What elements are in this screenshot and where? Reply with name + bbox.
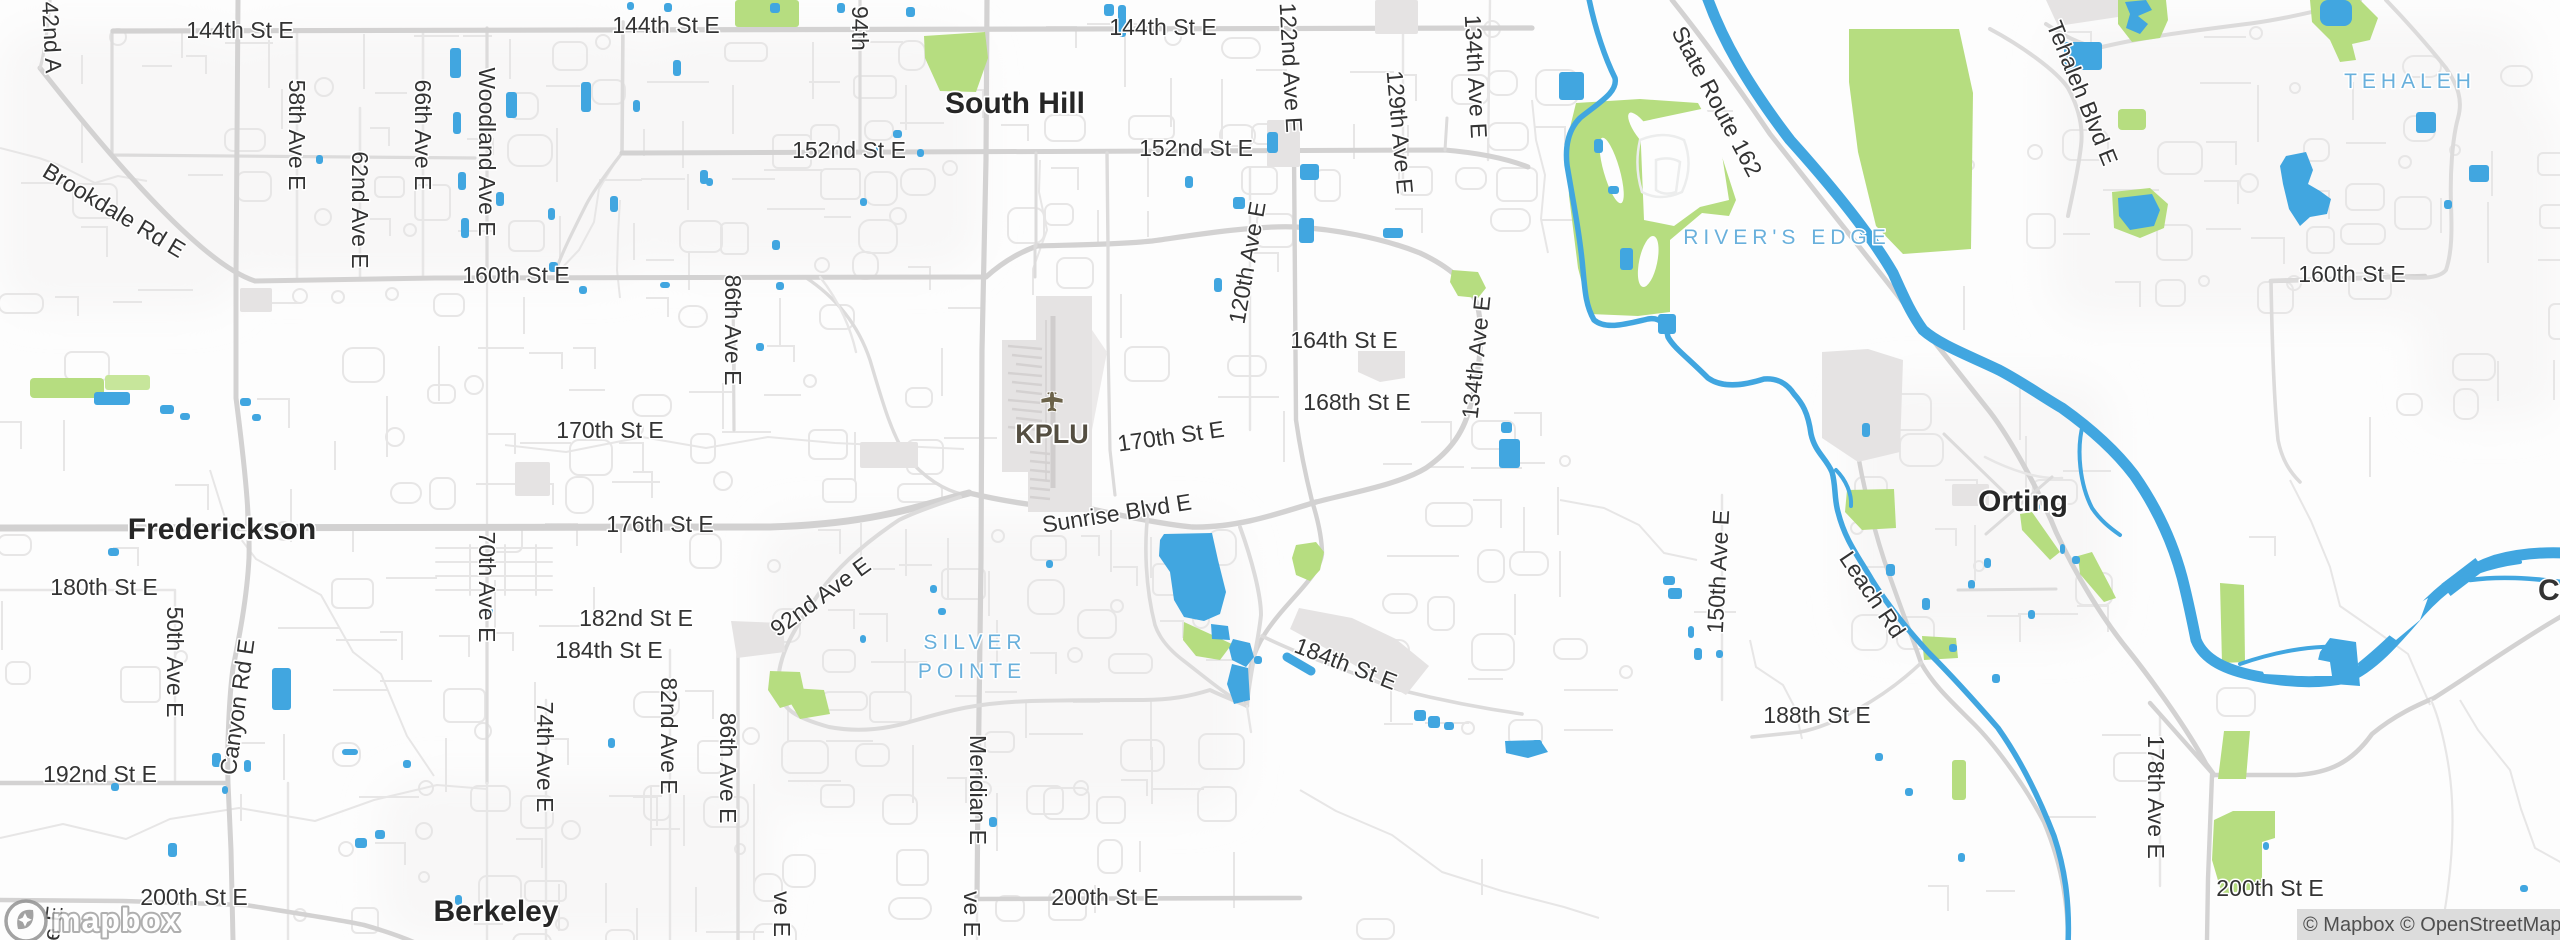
svg-text:62nd Ave E: 62nd Ave E xyxy=(347,151,373,268)
svg-text:74th Ave E: 74th Ave E xyxy=(532,702,558,813)
svg-text:160th St E: 160th St E xyxy=(462,262,569,288)
svg-text:South Hill: South Hill xyxy=(945,87,1085,120)
svg-text:Meridian E: Meridian E xyxy=(965,735,991,845)
svg-text:Berkeley: Berkeley xyxy=(433,895,558,928)
svg-text:70th Ave E: 70th Ave E xyxy=(474,532,500,643)
svg-text:50th Ave E: 50th Ave E xyxy=(162,607,188,718)
svg-text:86th Ave E: 86th Ave E xyxy=(720,275,746,386)
svg-text:ve E: ve E xyxy=(959,891,985,937)
svg-text:192nd St E: 192nd St E xyxy=(43,761,157,787)
svg-text:© Mapbox © OpenStreetMap: © Mapbox © OpenStreetMap xyxy=(2303,914,2560,936)
svg-text:184th St E: 184th St E xyxy=(555,637,662,663)
svg-text:42nd A: 42nd A xyxy=(37,1,67,75)
svg-text:94th: 94th xyxy=(847,6,873,51)
svg-text:144th St E: 144th St E xyxy=(612,12,719,38)
svg-text:152nd St E: 152nd St E xyxy=(792,137,906,163)
svg-text:200th St E: 200th St E xyxy=(2216,875,2323,901)
svg-text:144th St E: 144th St E xyxy=(186,17,293,43)
svg-text:Frederickson: Frederickson xyxy=(128,513,316,546)
svg-text:66th Ave E: 66th Ave E xyxy=(410,80,436,191)
svg-text:200th St E: 200th St E xyxy=(1051,884,1158,910)
svg-text:Woodland Ave E: Woodland Ave E xyxy=(474,67,500,236)
svg-text:152nd St E: 152nd St E xyxy=(1139,135,1253,161)
svg-text:Cr: Cr xyxy=(2538,574,2560,607)
svg-text:82nd Ave E: 82nd Ave E xyxy=(656,677,682,794)
svg-text:POINTE: POINTE xyxy=(918,660,1026,683)
svg-text:ve E: ve E xyxy=(769,891,795,937)
svg-text:170th St E: 170th St E xyxy=(556,417,663,443)
svg-text:178th Ave E: 178th Ave E xyxy=(2143,735,2169,859)
svg-text:RIVER'S EDGE: RIVER'S EDGE xyxy=(1683,226,1891,249)
svg-text:188th St E: 188th St E xyxy=(1763,702,1870,728)
svg-text:182nd St E: 182nd St E xyxy=(579,605,693,631)
svg-text:144th St E: 144th St E xyxy=(1109,14,1216,40)
svg-text:160th St E: 160th St E xyxy=(2298,261,2405,287)
svg-text:180th St E: 180th St E xyxy=(50,574,157,600)
svg-text:176th St E: 176th St E xyxy=(606,511,713,537)
svg-text:KPLU: KPLU xyxy=(1015,419,1089,449)
svg-text:mapbox: mapbox xyxy=(52,902,181,938)
svg-text:Orting: Orting xyxy=(1978,485,2068,518)
svg-text:168th St E: 168th St E xyxy=(1303,389,1410,415)
svg-text:58th Ave E: 58th Ave E xyxy=(284,80,310,191)
svg-text:86th Ave E: 86th Ave E xyxy=(715,713,741,824)
svg-text:SILVER: SILVER xyxy=(923,631,1026,654)
svg-text:TEHALEH: TEHALEH xyxy=(2344,70,2476,93)
svg-text:164th St E: 164th St E xyxy=(1290,327,1397,353)
